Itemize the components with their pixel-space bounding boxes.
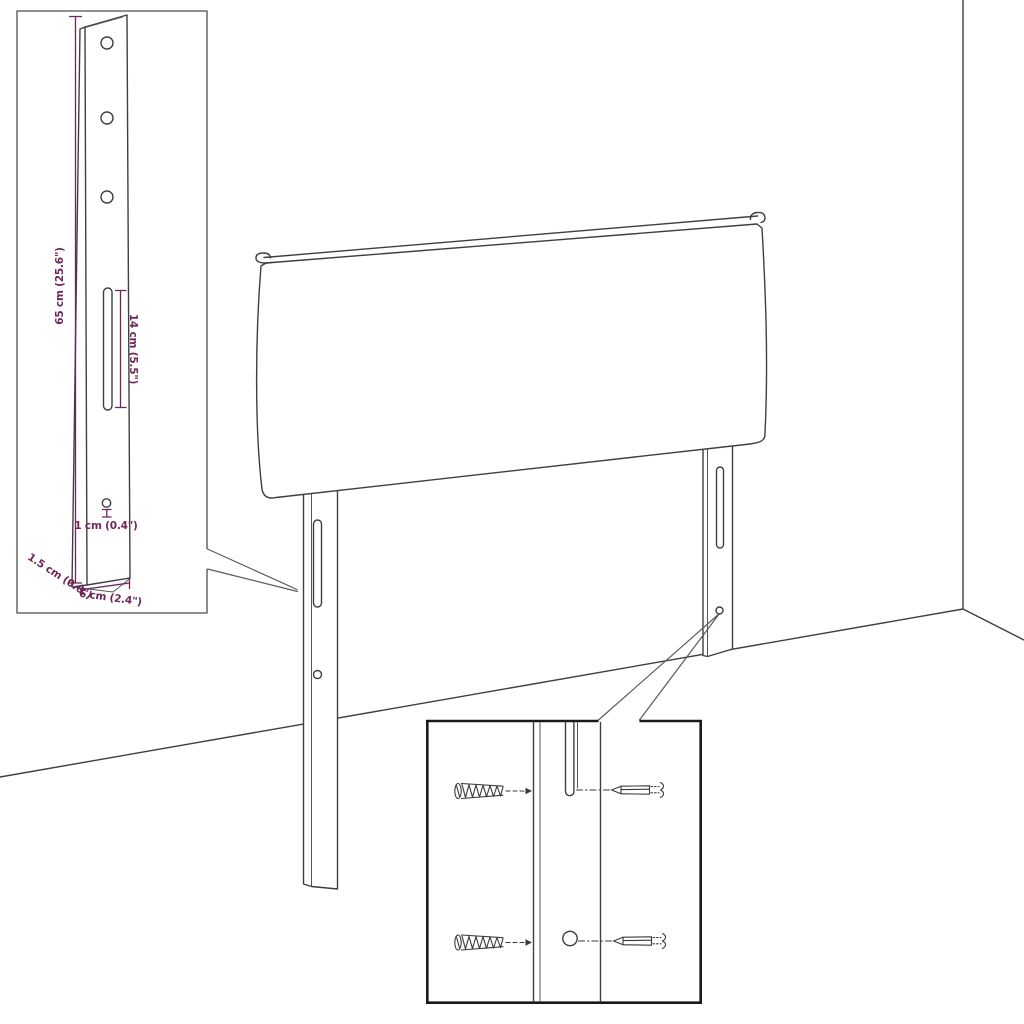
right-mounting-leg <box>703 427 733 657</box>
callout-line <box>208 569 298 592</box>
left-mounting-leg <box>304 451 338 889</box>
label-leg-height: 65 cm (25.6") <box>54 247 66 324</box>
callout-line <box>599 614 720 721</box>
callout-lines-left <box>208 549 298 592</box>
headboard-panel <box>256 212 767 498</box>
callout-lines-bottom <box>599 614 720 721</box>
leg-detail-inset: 65 cm (25.6") 14 cm (5.5") 1 cm (0.4") 1… <box>17 11 207 613</box>
inset-background <box>427 721 702 1004</box>
panel-top-right-lip <box>750 212 765 222</box>
floor-line-right <box>963 609 1024 640</box>
panel-front-face <box>257 224 767 498</box>
screw-detail-inset <box>427 721 702 1004</box>
callout-line <box>640 614 720 721</box>
label-hole-diameter: 1 cm (0.4") <box>74 520 137 532</box>
callout-line <box>208 549 298 590</box>
headboard-dimension-diagram: 65 cm (25.6") 14 cm (5.5") 1 cm (0.4") 1… <box>0 0 1024 1024</box>
label-slot-length: 14 cm (5.5") <box>127 314 139 384</box>
left-leg-body <box>304 451 338 889</box>
